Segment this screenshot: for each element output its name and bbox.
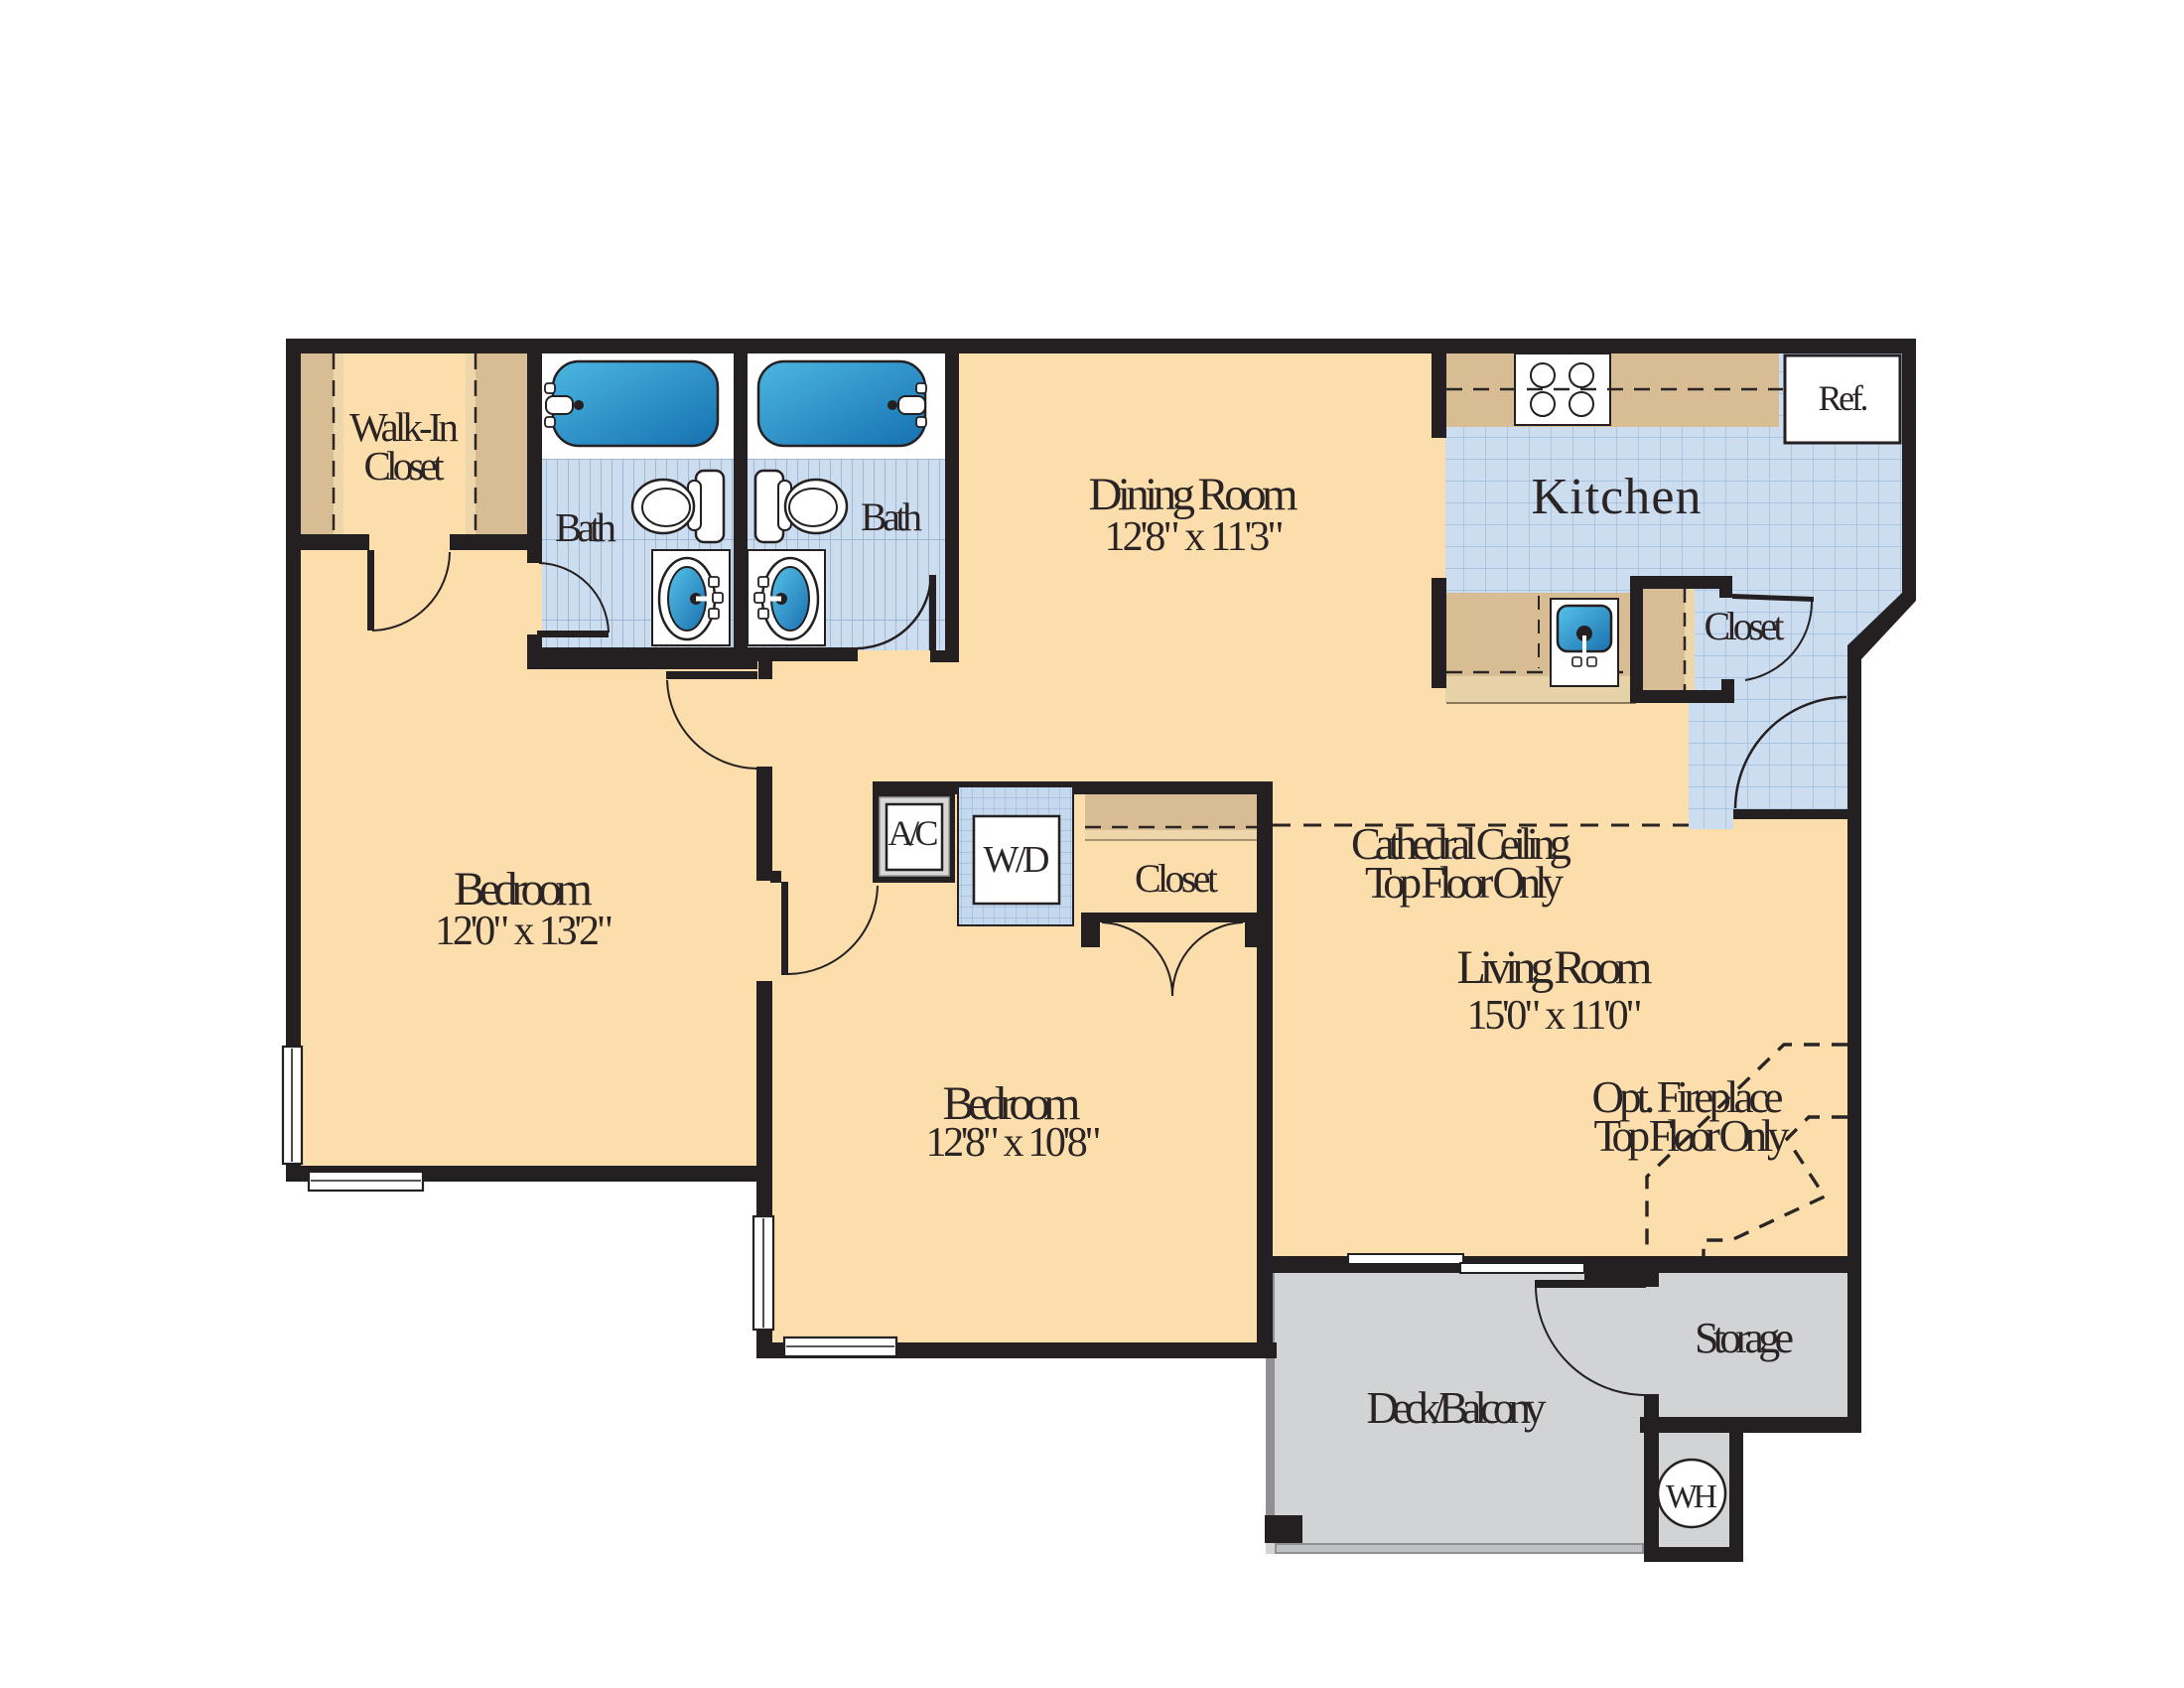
svg-text:Bath: Bath <box>861 494 922 539</box>
svg-text:Storage: Storage <box>1695 1314 1794 1362</box>
svg-text:12'0" x 13'2": 12'0" x 13'2" <box>435 909 614 954</box>
svg-text:WH: WH <box>1666 1478 1717 1515</box>
svg-text:Kitchen: Kitchen <box>1532 469 1702 525</box>
svg-text:12'8" x 10'8": 12'8" x 10'8" <box>926 1120 1102 1166</box>
svg-text:Closet: Closet <box>364 443 446 489</box>
svg-text:Dining Room: Dining Room <box>1089 469 1298 520</box>
svg-text:W/D: W/D <box>984 839 1050 881</box>
svg-text:15'0" x 11'0": 15'0" x 11'0" <box>1467 993 1643 1039</box>
svg-text:Top Floor Only: Top Floor Only <box>1365 858 1565 908</box>
svg-text:Top Floor Only: Top Floor Only <box>1594 1111 1791 1161</box>
svg-text:Bath: Bath <box>555 504 616 550</box>
svg-text:A/C: A/C <box>888 813 939 853</box>
svg-text:Living Room: Living Room <box>1457 941 1653 994</box>
svg-text:Closet: Closet <box>1135 856 1218 901</box>
svg-text:Closet: Closet <box>1705 604 1785 648</box>
svg-text:Ref.: Ref. <box>1819 378 1869 418</box>
svg-text:12'8" x 11'3": 12'8" x 11'3" <box>1105 514 1285 560</box>
svg-text:Deck/Balcony: Deck/Balcony <box>1367 1383 1548 1433</box>
